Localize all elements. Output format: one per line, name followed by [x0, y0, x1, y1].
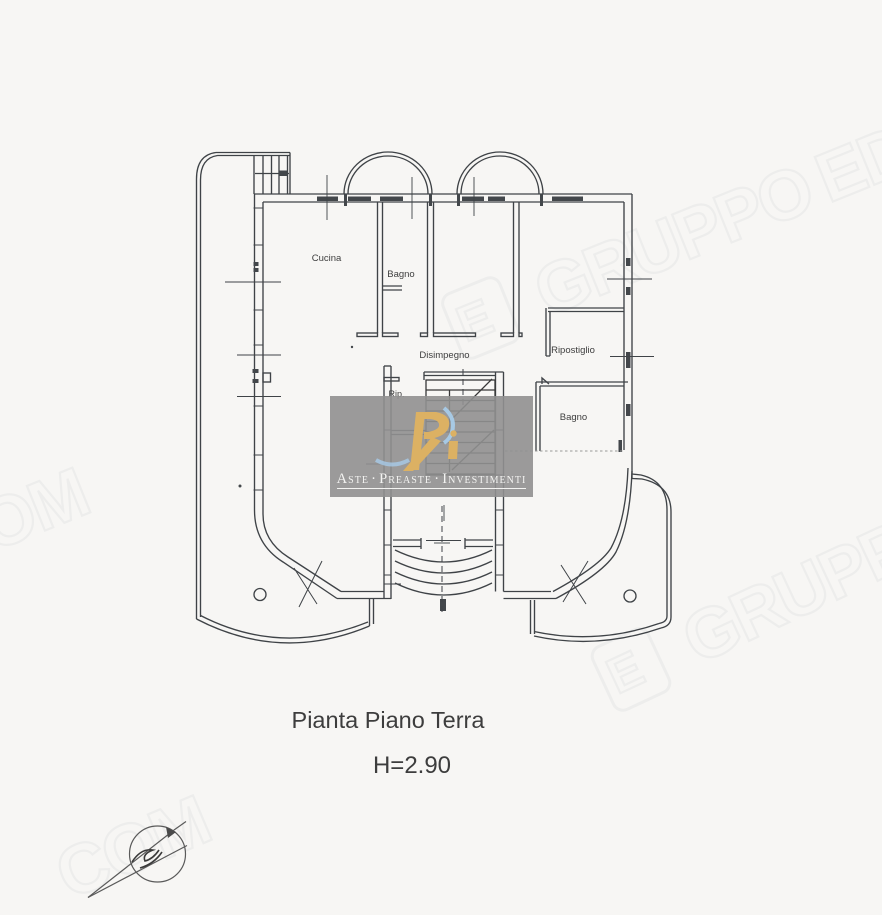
svg-text:Bagno: Bagno: [387, 269, 414, 280]
svg-text:Disimpegno: Disimpegno: [419, 350, 469, 361]
svg-text:Bagno: Bagno: [560, 412, 587, 423]
svg-text:Cucina: Cucina: [312, 253, 342, 264]
svg-text:Ripostiglio: Ripostiglio: [551, 345, 595, 356]
